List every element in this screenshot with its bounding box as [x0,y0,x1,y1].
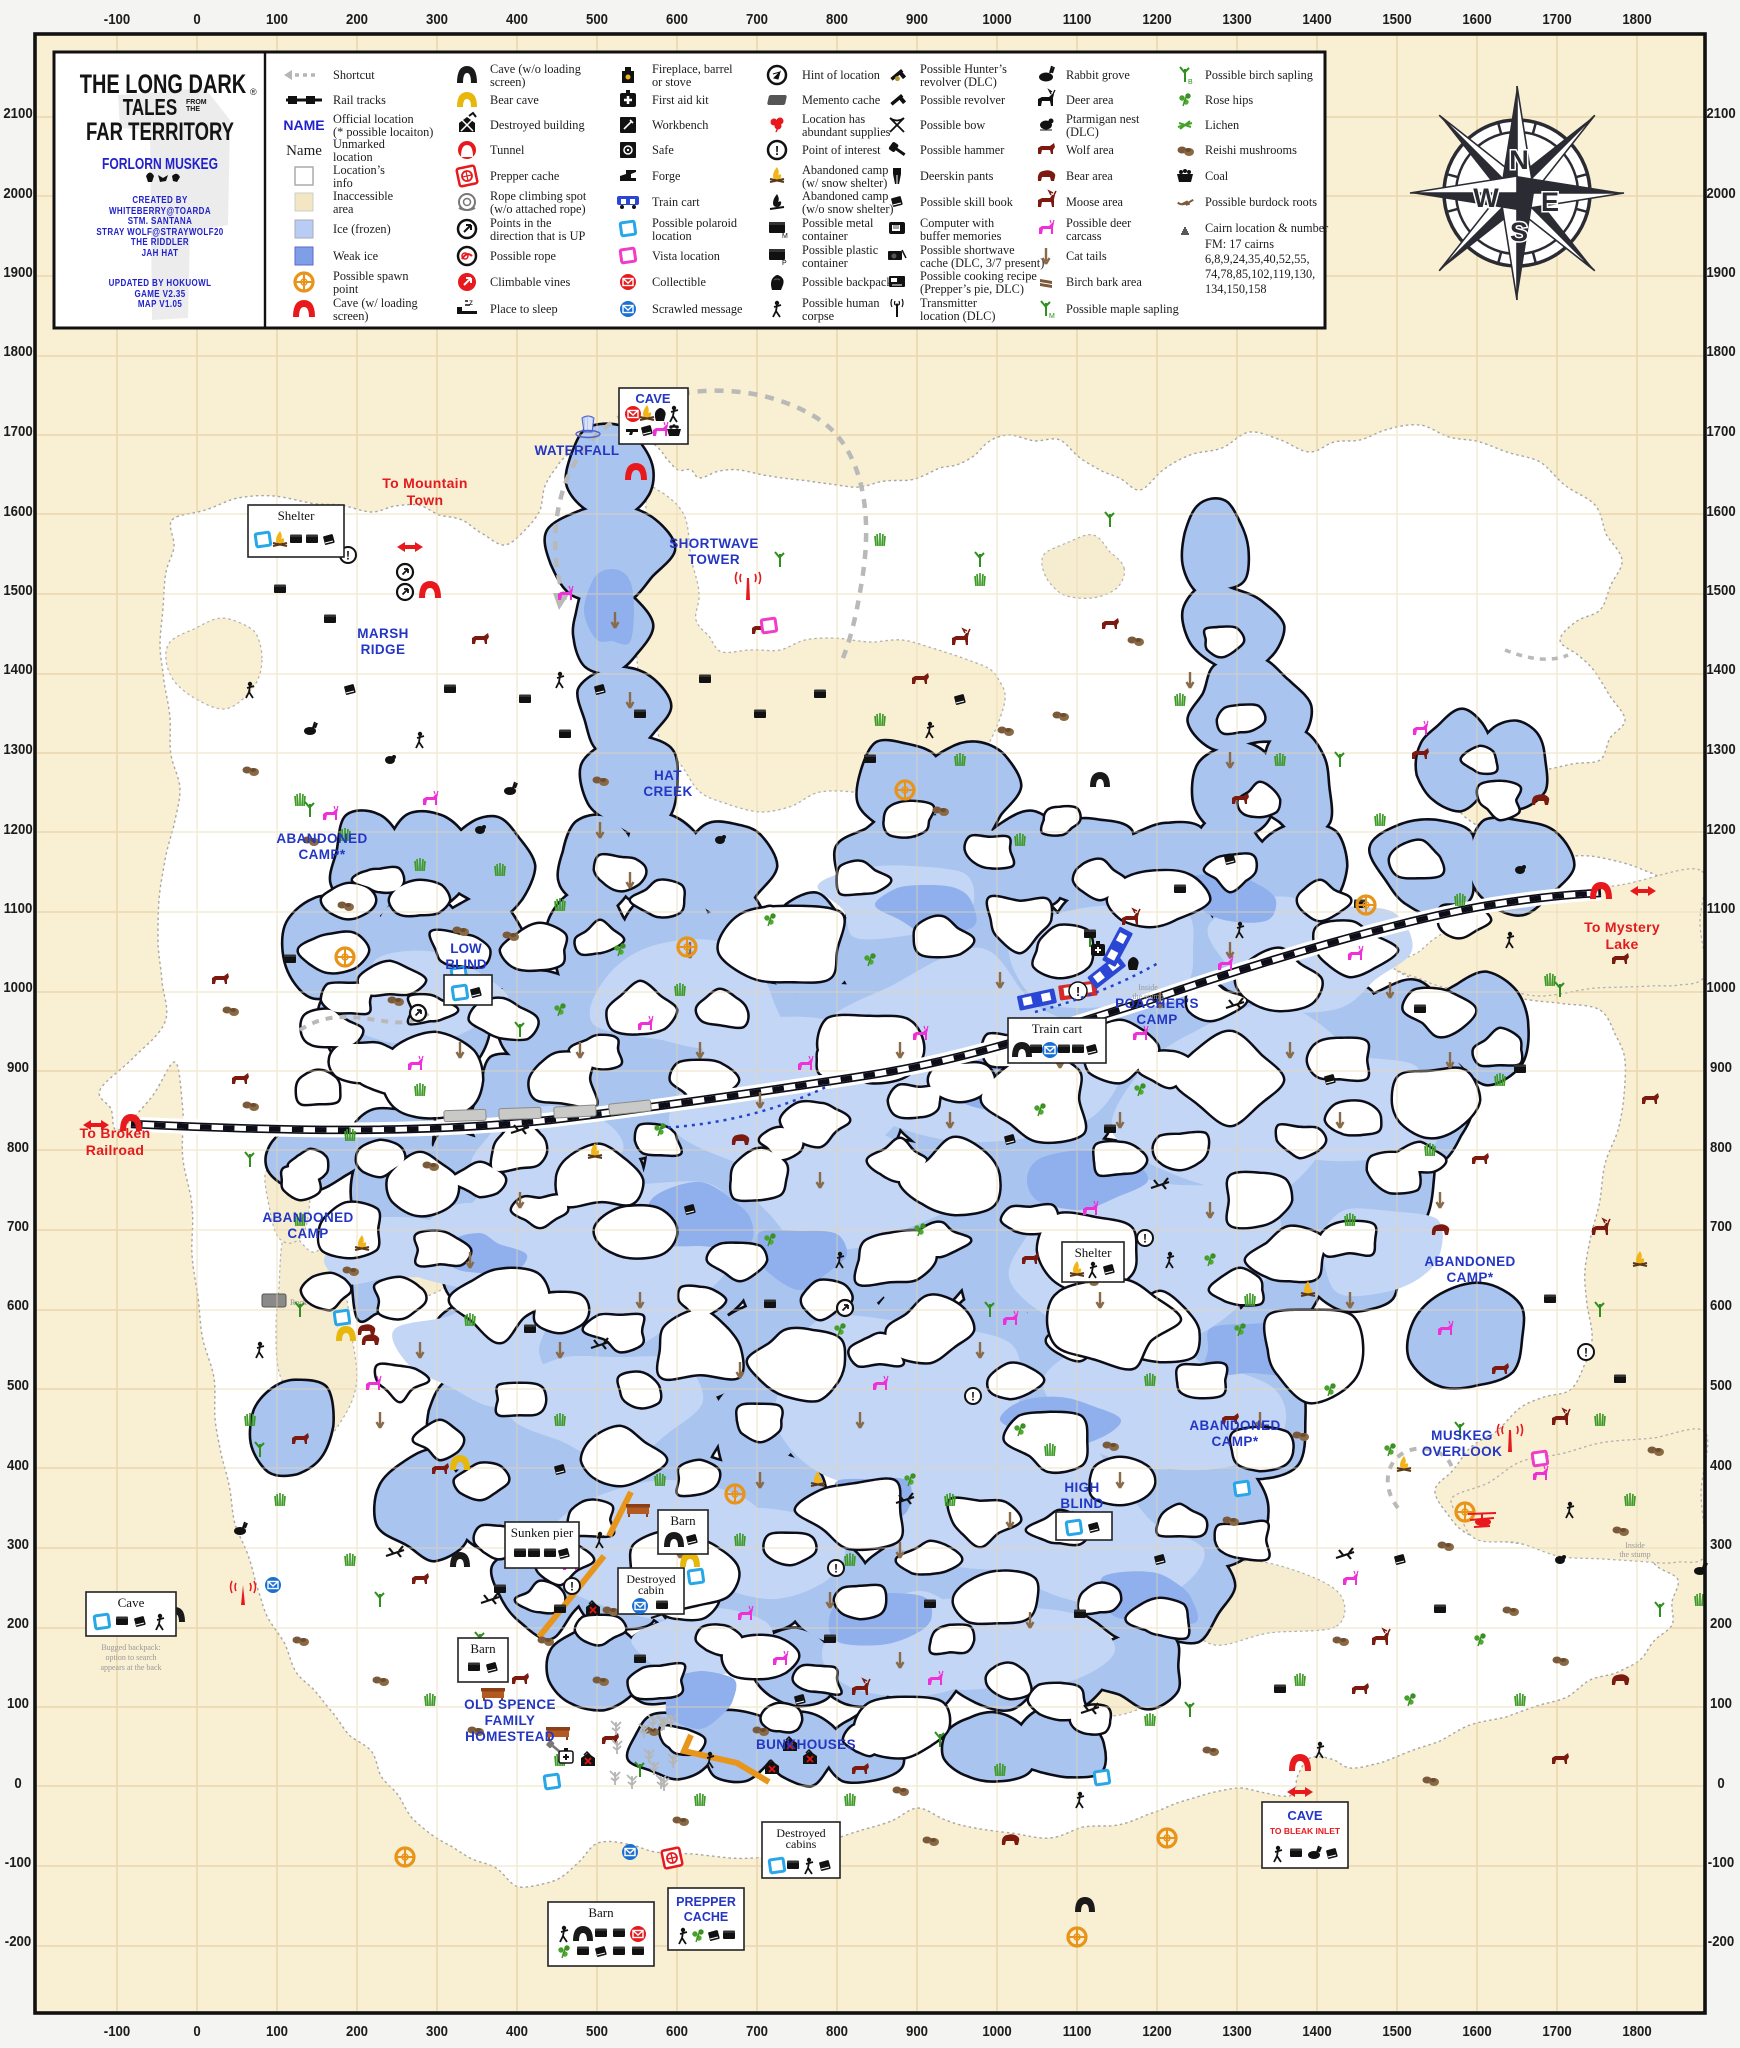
svg-text:Rabbit grove: Rabbit grove [1066,68,1130,82]
svg-text:P: P [782,260,787,267]
svg-text:abundant supplies: abundant supplies [802,125,891,139]
svg-text:1600: 1600 [1706,502,1735,519]
svg-text:CAMP*: CAMP* [298,847,345,862]
svg-text:200: 200 [1710,1614,1732,1631]
svg-text:Birch bark area: Birch bark area [1066,275,1142,289]
svg-text:carcass: carcass [1066,229,1102,243]
svg-text:1400: 1400 [3,660,32,677]
svg-text:100: 100 [266,2022,288,2039]
svg-text:FORLORN MUSKEG: FORLORN MUSKEG [102,155,218,173]
svg-text:MARSH: MARSH [357,626,409,641]
svg-text:400: 400 [506,10,528,27]
svg-text:CAMP: CAMP [1136,1012,1177,1027]
svg-text:!: ! [1584,1346,1588,1360]
svg-text:Cave: Cave [118,1595,145,1610]
svg-text:1300: 1300 [1222,2022,1251,2039]
svg-text:Official location: Official location [333,112,414,126]
svg-text:Possible hammer: Possible hammer [920,143,1004,157]
svg-text:FAMILY: FAMILY [485,1713,536,1728]
svg-text:1000: 1000 [982,10,1011,27]
svg-text:Weak ice: Weak ice [333,249,379,263]
svg-text:ABANDONED: ABANDONED [1189,1418,1280,1433]
svg-text:Climbable vines: Climbable vines [490,275,570,289]
svg-text:1000: 1000 [3,978,32,995]
svg-text:Possible deer: Possible deer [1066,216,1131,230]
svg-text:0: 0 [1717,1774,1724,1791]
svg-text:screen): screen) [490,75,526,89]
svg-text:cache (DLC, 3/7 present): cache (DLC, 3/7 present) [920,256,1044,270]
svg-text:1900: 1900 [1706,263,1735,280]
svg-text:Cave (w/ loading: Cave (w/ loading [333,296,418,310]
svg-text:900: 900 [906,2022,928,2039]
svg-text:Fireplace, barrel: Fireplace, barrel [652,62,733,76]
svg-text:2100: 2100 [1706,104,1735,121]
svg-text:Train cart: Train cart [652,195,700,209]
svg-text:Barn: Barn [670,1513,696,1528]
svg-text:Shortcut: Shortcut [333,68,375,82]
svg-text:Bear cave: Bear cave [490,93,539,107]
svg-text:1000: 1000 [1706,978,1735,995]
svg-text:300: 300 [426,2022,448,2039]
svg-text:HAT: HAT [654,768,682,783]
svg-text:Inaccessible: Inaccessible [333,189,394,203]
svg-text:800: 800 [826,10,848,27]
svg-text:300: 300 [426,10,448,27]
svg-text:revolver (DLC): revolver (DLC) [920,75,997,89]
svg-text:Possible revolver: Possible revolver [920,93,1005,107]
svg-text:600: 600 [1710,1296,1732,1313]
svg-text:option to search: option to search [105,1653,156,1662]
svg-text:100: 100 [266,10,288,27]
svg-text:1100: 1100 [1063,2022,1092,2039]
svg-text:Scrawled message: Scrawled message [652,302,743,316]
svg-text:BUNKHOUSES: BUNKHOUSES [756,1737,856,1752]
svg-text:Ptarmigan nest: Ptarmigan nest [1066,112,1140,126]
svg-text:Points in the: Points in the [490,216,552,230]
svg-text:1100: 1100 [1707,899,1736,916]
svg-text:Bear area: Bear area [1066,169,1113,183]
svg-text:1300: 1300 [1222,10,1251,27]
svg-text:Train cart: Train cart [1032,1021,1083,1036]
svg-text:Reishi mushrooms: Reishi mushrooms [1205,143,1297,157]
svg-text:Inside: Inside [1625,1541,1645,1550]
svg-text:S: S [1510,217,1528,247]
svg-text:!: ! [570,1580,574,1594]
svg-text:Cairn location & number: Cairn location & number [1205,221,1328,235]
svg-text:-200: -200 [1708,1932,1735,1949]
svg-text:Cave (w/o loading: Cave (w/o loading [490,62,581,76]
svg-text:200: 200 [346,10,368,27]
svg-text:CREATED BY: CREATED BY [132,194,187,205]
svg-text:BLIND: BLIND [445,957,486,972]
svg-text:500: 500 [7,1376,29,1393]
svg-text:SHORTWAVE: SHORTWAVE [669,536,759,551]
svg-text:ABANDONED: ABANDONED [276,831,367,846]
svg-text:or stove: or stove [652,75,692,89]
svg-text:®: ® [250,87,257,97]
svg-text:-100: -100 [1708,1853,1735,1870]
svg-text:FM: 17 cairns: FM: 17 cairns [1205,237,1274,251]
svg-text:Wolf area: Wolf area [1066,143,1114,157]
svg-text:Possible maple sapling: Possible maple sapling [1066,302,1179,316]
svg-text:Deerskin pants: Deerskin pants [920,169,994,183]
svg-text:Lake: Lake [1605,936,1638,952]
svg-text:Rope climbing spot: Rope climbing spot [490,189,587,203]
svg-text:Point of interest: Point of interest [802,143,881,157]
svg-text:Ice (frozen): Ice (frozen) [333,222,391,236]
svg-text:container: container [802,229,848,243]
svg-text:500: 500 [586,10,608,27]
svg-text:400: 400 [7,1456,29,1473]
svg-text:Shelter: Shelter [1075,1245,1112,1260]
svg-text:600: 600 [666,2022,688,2039]
svg-text:Possible polaroid: Possible polaroid [652,216,737,230]
svg-text:0: 0 [14,1774,21,1791]
svg-text:1700: 1700 [1542,2022,1571,2039]
svg-text:PREPPER: PREPPER [676,1895,736,1909]
svg-text:1700: 1700 [1706,422,1735,439]
svg-text:300: 300 [1710,1535,1732,1552]
svg-text:Abandoned camp: Abandoned camp [802,163,888,177]
svg-text:Possible birch sapling: Possible birch sapling [1205,68,1313,82]
svg-text:400: 400 [506,2022,528,2039]
svg-text:1500: 1500 [1382,10,1411,27]
svg-text:Transmitter: Transmitter [920,296,977,310]
svg-text:1900: 1900 [3,263,32,280]
svg-text:1200: 1200 [1706,820,1735,837]
svg-text:74,78,85,102,119,130,: 74,78,85,102,119,130, [1205,267,1315,281]
svg-text:info: info [333,176,353,190]
svg-text:Possible shortwave: Possible shortwave [920,243,1015,257]
svg-text:100: 100 [7,1694,29,1711]
svg-text:2000: 2000 [1706,184,1735,201]
svg-text:800: 800 [7,1138,29,1155]
svg-text:Inside: Inside [1138,983,1158,992]
svg-text:1600: 1600 [1462,10,1491,27]
svg-text:Location’s: Location’s [333,163,385,177]
svg-text:Safe: Safe [652,143,674,157]
svg-text:1300: 1300 [1706,740,1735,757]
svg-text:900: 900 [1710,1058,1732,1075]
svg-text:2000: 2000 [3,184,32,201]
svg-text:1600: 1600 [1462,2022,1491,2039]
svg-text:Lichen: Lichen [1205,118,1239,132]
svg-text:Barn: Barn [588,1905,614,1920]
svg-text:Place to sleep: Place to sleep [490,302,558,316]
svg-text:Memento cache: Memento cache [802,93,881,107]
svg-text:!: ! [1143,1232,1147,1246]
svg-text:900: 900 [906,10,928,27]
svg-text:FROM: FROM [186,99,207,106]
svg-text:900: 900 [7,1058,29,1075]
svg-text:M: M [1049,313,1055,320]
svg-text:1400: 1400 [1706,660,1735,677]
svg-text:Possible spawn: Possible spawn [333,269,409,283]
svg-text:Possible cooking recipe: Possible cooking recipe [920,269,1037,283]
svg-text:z: z [469,298,473,307]
svg-text:Vista location: Vista location [652,249,720,263]
svg-text:point: point [333,282,359,296]
svg-text:To Broken: To Broken [80,1125,151,1141]
svg-text:1500: 1500 [1706,581,1735,598]
svg-text:1800: 1800 [1622,10,1651,27]
svg-text:0: 0 [193,10,200,27]
svg-text:!: ! [834,1562,838,1576]
svg-text:1800: 1800 [1622,2022,1651,2039]
svg-text:-100: -100 [104,10,131,27]
svg-text:1400: 1400 [1302,2022,1331,2039]
svg-text:Name: Name [286,143,322,159]
svg-text:TO BLEAK INLET: TO BLEAK INLET [1270,1826,1341,1836]
svg-text:Hint of location: Hint of location [802,68,880,82]
svg-text:700: 700 [746,10,768,27]
svg-text:Forge: Forge [652,169,681,183]
svg-text:Possible metal: Possible metal [802,216,874,230]
svg-text:Coal: Coal [1205,169,1229,183]
svg-text:1400: 1400 [1302,10,1331,27]
svg-text:Prepper cache: Prepper cache [490,169,560,183]
svg-text:Possible rope: Possible rope [490,249,556,263]
svg-text:500: 500 [586,2022,608,2039]
svg-text:Town: Town [407,492,444,508]
svg-text:CAVE: CAVE [635,391,670,406]
svg-text:Railroad: Railroad [86,1142,144,1158]
svg-text:container: container [802,256,848,270]
svg-text:First aid kit: First aid kit [652,93,709,107]
svg-text:FAR TERRITORY: FAR TERRITORY [86,117,234,145]
svg-text:Barn: Barn [470,1641,496,1656]
svg-text:300: 300 [7,1535,29,1552]
svg-text:1300: 1300 [3,740,32,757]
svg-text:Computer with: Computer with [920,216,994,230]
svg-text:MUSKEG: MUSKEG [1431,1428,1493,1443]
svg-text:the stump: the stump [1619,1550,1650,1559]
svg-text:THE: THE [186,106,200,113]
svg-text:0: 0 [193,2022,200,2039]
svg-text:Possible burdock roots: Possible burdock roots [1205,195,1317,209]
svg-text:600: 600 [7,1296,29,1313]
svg-text:Workbench: Workbench [652,118,708,132]
svg-text:Bugged backpack:: Bugged backpack: [101,1643,160,1652]
svg-text:Collectible: Collectible [652,275,706,289]
svg-text:1200: 1200 [3,820,32,837]
svg-text:CACHE: CACHE [684,1910,728,1924]
svg-text:Destroyed building: Destroyed building [490,118,585,132]
svg-text:200: 200 [7,1614,29,1631]
svg-text:To Mountain: To Mountain [382,475,467,491]
svg-text:To Mystery: To Mystery [1584,919,1660,935]
svg-text:LOW: LOW [450,941,482,956]
svg-text:CAMP: CAMP [287,1226,328,1241]
svg-text:-100: -100 [5,1853,32,1870]
svg-text:Moose area: Moose area [1066,195,1124,209]
svg-text:buffer memories: buffer memories [920,229,1002,243]
svg-text:1700: 1700 [3,422,32,439]
svg-text:location (DLC): location (DLC) [920,309,995,323]
svg-text:ABANDONED: ABANDONED [262,1210,353,1225]
svg-text:E: E [1541,187,1559,217]
svg-text:location: location [333,150,373,164]
svg-text:HIGH: HIGH [1064,1480,1099,1495]
svg-text:800: 800 [1710,1138,1732,1155]
svg-text:ABANDONED: ABANDONED [1424,1254,1515,1269]
svg-text:1100: 1100 [4,899,33,916]
svg-text:(w/o snow shelter): (w/o snow shelter) [802,202,894,216]
svg-text:1500: 1500 [1382,2022,1411,2039]
svg-text:700: 700 [746,2022,768,2039]
svg-text:!: ! [346,549,350,563]
svg-text:-100: -100 [104,2022,131,2039]
svg-text:area: area [333,202,354,216]
svg-text:corpse: corpse [802,309,835,323]
svg-text:600: 600 [666,10,688,27]
svg-text:(Prepper’s pie, DLC): (Prepper’s pie, DLC) [920,282,1024,296]
svg-text:CAMP*: CAMP* [1211,1434,1258,1449]
svg-text:direction that is UP: direction that is UP [490,229,585,243]
svg-text:appears at the back: appears at the back [100,1663,161,1672]
svg-text:Possible backpack: Possible backpack [802,275,893,289]
svg-text:CAMP*: CAMP* [1446,1270,1493,1285]
svg-text:700: 700 [1710,1217,1732,1234]
svg-text:TOWER: TOWER [688,552,740,567]
svg-text:WATERFALL: WATERFALL [534,443,619,458]
svg-text:N: N [1509,145,1529,175]
svg-text:200: 200 [346,2022,368,2039]
svg-text:6,8,9,24,35,40,52,55,: 6,8,9,24,35,40,52,55, [1205,252,1310,266]
svg-text:-200: -200 [5,1932,32,1949]
svg-text:500: 500 [1710,1376,1732,1393]
svg-text:700: 700 [7,1217,29,1234]
svg-text:Rail tracks: Rail tracks [333,93,386,107]
svg-text:UPDATED BY HOKUOWL: UPDATED BY HOKUOWL [109,277,212,288]
svg-text:Possible plastic: Possible plastic [802,243,879,257]
svg-text:!: ! [1076,984,1080,999]
svg-text:location: location [652,229,692,243]
svg-text:!: ! [971,1390,975,1404]
svg-text:HOMESTEAD: HOMESTEAD [465,1729,555,1744]
svg-text:cabins: cabins [786,1837,817,1851]
svg-text:Shelter: Shelter [278,508,315,523]
svg-text:Unmarked: Unmarked [333,137,385,151]
svg-text:JAH HAT: JAH HAT [142,247,179,258]
svg-text:Possible human: Possible human [802,296,880,310]
svg-text:(w/o attached rope): (w/o attached rope) [490,202,586,216]
svg-text:1600: 1600 [3,502,32,519]
svg-text:OVERLOOK: OVERLOOK [1422,1444,1502,1459]
svg-text:Possible Hunter’s: Possible Hunter’s [920,62,1007,76]
svg-text:(DLC): (DLC) [1066,125,1099,139]
svg-text:Deer area: Deer area [1066,93,1114,107]
svg-text:STM. SANTANA: STM. SANTANA [128,215,193,226]
svg-text:MAP V1.05: MAP V1.05 [138,298,182,309]
svg-text:1000: 1000 [982,2022,1011,2039]
svg-text:(w/ snow shelter): (w/ snow shelter) [802,176,887,190]
svg-text:1800: 1800 [1706,342,1735,359]
svg-text:cabin: cabin [638,1583,664,1597]
svg-text:800: 800 [826,2022,848,2039]
svg-text:1800: 1800 [3,342,32,359]
svg-text:the stump: the stump [1132,992,1163,1001]
svg-text:1700: 1700 [1542,10,1571,27]
svg-text:OLD SPENCE: OLD SPENCE [464,1697,556,1712]
svg-text:400: 400 [1710,1456,1732,1473]
svg-text:screen): screen) [333,309,369,323]
svg-text:!: ! [775,143,779,158]
svg-text:RIDGE: RIDGE [361,642,406,657]
svg-text:2100: 2100 [3,104,32,121]
svg-text:Location has: Location has [802,112,865,126]
svg-text:1200: 1200 [1142,2022,1171,2039]
svg-text:Abandoned camp: Abandoned camp [802,189,888,203]
svg-text:W: W [1473,183,1499,213]
svg-text:1500: 1500 [3,581,32,598]
svg-text:THE RIDDLER: THE RIDDLER [131,236,189,247]
svg-text:1200: 1200 [1142,10,1171,27]
svg-text:Tunnel: Tunnel [490,143,525,157]
svg-text:100: 100 [1710,1694,1732,1711]
svg-text:Rose hips: Rose hips [1205,93,1253,107]
svg-text:1100: 1100 [1063,10,1092,27]
svg-text:Possible bow: Possible bow [920,118,985,132]
svg-text:CAVE: CAVE [1287,1808,1322,1823]
svg-text:134,150,158: 134,150,158 [1205,282,1266,296]
svg-text:Possible skill book: Possible skill book [920,195,1014,209]
svg-text:B: B [1188,79,1193,86]
svg-text:CREEK: CREEK [643,784,692,799]
svg-text:Sunken pier: Sunken pier [511,1525,574,1540]
svg-text:NAME: NAME [283,117,324,133]
svg-text:BLIND: BLIND [1060,1496,1103,1511]
svg-text:Cat tails: Cat tails [1066,249,1107,263]
svg-text:M: M [782,233,788,240]
